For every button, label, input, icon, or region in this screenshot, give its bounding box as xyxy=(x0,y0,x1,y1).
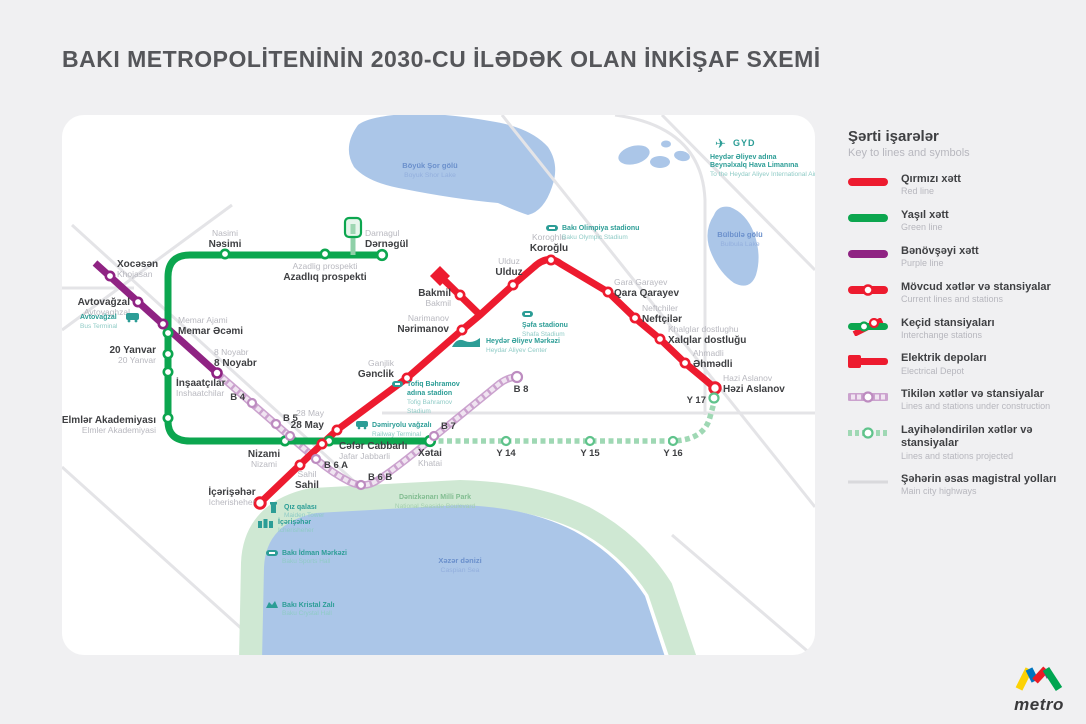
svg-text:Memar Əcəmi: Memar Əcəmi xyxy=(178,326,243,337)
tofig-bahramov-az1: Tofiq Bəhramov xyxy=(407,381,460,388)
sports-hall-az: Bakı İdman Mərkəzi xyxy=(282,549,347,557)
svg-text:8 Noyabr: 8 Noyabr xyxy=(214,347,249,357)
green-line-swatch-icon xyxy=(848,210,888,226)
svg-text:Neftchiler: Neftchiler xyxy=(642,303,678,313)
station-memar: Memar AjamiMemar Əcəmi xyxy=(178,315,243,337)
olympic-stadium-en: Baku Olympic Stadium xyxy=(562,234,628,241)
heydar-aliyev-center-az: Heydər Əliyev Mərkəzi xyxy=(486,338,560,345)
station-jafar: Cəfər CabbarlıJafar Jabbarli xyxy=(339,441,408,461)
crystal-hall-en: Baku Crystal Hall xyxy=(282,610,332,617)
red-line-swatch-icon xyxy=(848,174,888,190)
svg-text:Nizami: Nizami xyxy=(251,459,277,469)
depot-icon xyxy=(345,218,361,237)
page-title: BAKI METROPOLİTENİNİN 2030-CU İLƏDƏK OLA… xyxy=(62,46,821,73)
station-y17-label: Y 17 xyxy=(687,395,706,406)
station-elmler: Elmlər AkademiyasıElmler Akademiyasi xyxy=(62,415,156,435)
bus-terminal-en: Bus Terminal xyxy=(80,323,118,330)
tofig-bahramov-en2: Stadium xyxy=(407,408,431,415)
svg-text:Ahmadli: Ahmadli xyxy=(693,348,724,358)
svg-text:8 Noyabr: 8 Noyabr xyxy=(214,358,257,369)
station-ulduz: UlduzUlduz xyxy=(495,256,522,278)
highway-swatch-icon xyxy=(848,474,888,490)
station-narimanov: NarimanovNərimanov xyxy=(397,313,449,335)
svg-text:Azadlig prospekti: Azadlig prospekti xyxy=(293,261,358,271)
sports-hall-en: Baku Sports Hall xyxy=(282,558,331,565)
legend-item-depot: Elektrik depolarıElectrical Depot xyxy=(848,352,1084,377)
svg-text:20 Yanvar: 20 Yanvar xyxy=(118,355,156,365)
shafa-stadium-en: Shafa Stadium xyxy=(522,331,565,338)
icherisheher-landmark-az: İçərişəhər xyxy=(278,518,311,526)
metro-map-card: Böyük Şor gölü Boyuk Shor Lake Bülbülə g… xyxy=(62,115,815,655)
maiden-tower-en: Maiden Tower xyxy=(284,512,325,519)
airport-lake-1 xyxy=(616,142,652,168)
station-8noyabr: 8 Noyabr8 Noyabr xyxy=(214,347,257,369)
metro-m-icon xyxy=(1015,660,1063,692)
depot-swatch-icon xyxy=(848,353,888,369)
airport-code: GYD xyxy=(733,138,756,148)
airport-line1: Heydər Əliyev adına xyxy=(710,154,777,161)
caspian-label-az: Xəzər dənizi xyxy=(438,556,481,565)
station-khatai: XətaiKhatai xyxy=(418,448,442,468)
station-hazi: Hazi AslanovHəzi Aslanov xyxy=(723,373,785,395)
svg-text:Xalqlar dostluğu: Xalqlar dostluğu xyxy=(668,335,746,346)
current-stations-swatch-icon xyxy=(848,282,888,298)
svg-text:Ganjlik: Ganjlik xyxy=(368,358,395,368)
svg-text:Koroğlu: Koroğlu xyxy=(530,243,568,254)
park-label-az: Dənizkənarı Milli Park xyxy=(399,494,471,501)
svg-text:Ulduz: Ulduz xyxy=(498,256,520,266)
station-b6a-label: B 6 A xyxy=(324,460,348,471)
baku-metro-logo: metro xyxy=(1002,660,1076,715)
svg-text:Əhmədli: Əhmədli xyxy=(693,359,733,370)
svg-text:Sahil: Sahil xyxy=(295,480,319,491)
svg-text:Inshaatchilar: Inshaatchilar xyxy=(176,388,224,398)
station-neftchiler: NeftchilerNeftçilər xyxy=(642,303,682,325)
station-icherisheher: İçərişəhərIcherisheher xyxy=(208,485,255,507)
legend-subtitle: Key to lines and symbols xyxy=(848,147,1084,159)
station-nasimi: NasimiNəsimi xyxy=(209,228,242,250)
purple-line-swatch-icon xyxy=(848,246,888,262)
svg-text:Sahil: Sahil xyxy=(298,469,317,479)
tofig-bahramov-az2: adına stadion xyxy=(407,390,452,397)
svg-text:Hazi Aslanov: Hazi Aslanov xyxy=(723,373,773,383)
shafa-stadium-icon xyxy=(522,311,533,317)
svg-text:Həzi Aslanov: Həzi Aslanov xyxy=(723,384,785,395)
station-khalglar: Khalglar dostlughuXalqlar dostluğu xyxy=(668,324,746,346)
bulbula-label-az: Bülbülə gölü xyxy=(717,230,763,239)
crystal-hall-az: Bakı Kristal Zalı xyxy=(282,602,335,609)
plane-icon: ✈ xyxy=(715,136,726,151)
railway-terminal-en: Railway Terminal xyxy=(372,431,422,438)
airport-line3: To the Heydar Aliyev International Airpo… xyxy=(710,171,815,178)
legend-item-projected: Layihələndirilən xətlər və stansiyalarLi… xyxy=(848,424,1084,462)
sports-hall-icon xyxy=(266,550,278,556)
station-b5-label: B 5 xyxy=(283,413,299,424)
svg-text:Azadlıq prospekti: Azadlıq prospekti xyxy=(283,272,367,283)
interchange-swatch-icon xyxy=(848,318,888,336)
station-ahmadli: AhmadliƏhmədli xyxy=(693,348,733,370)
station-inshaatchilar: İnşaatçılarInshaatchilar xyxy=(176,376,226,398)
projected-swatch-icon xyxy=(848,425,888,441)
station-qara: Gara GarayevQara Qarayev xyxy=(614,277,679,299)
caspian-label-en: Caspian Sea xyxy=(441,567,480,574)
station-bakmil: BakmilBakmil xyxy=(418,288,451,308)
svg-text:Gənclik: Gənclik xyxy=(358,369,395,380)
station-khojasan: XocəsənKhojasan xyxy=(117,259,158,279)
maiden-tower-az: Qız qalası xyxy=(284,504,317,511)
svg-text:Ulduz: Ulduz xyxy=(495,267,522,278)
station-nizami: NizamiNizami xyxy=(248,449,280,469)
svg-text:Bakmil: Bakmil xyxy=(425,298,451,308)
tofig-bahramov-stadium-icon xyxy=(392,381,403,387)
svg-text:Gara Garayev: Gara Garayev xyxy=(614,277,668,287)
olympic-stadium-icon xyxy=(546,225,558,231)
station-y14-label: Y 14 xyxy=(496,448,516,459)
station-b7-label: B 7 xyxy=(441,421,456,432)
legend-item-highways: Şəhərin əsas magistral yollarıMain city … xyxy=(848,473,1084,498)
svg-text:Elmler Akademiyasi: Elmler Akademiyasi xyxy=(82,425,156,435)
svg-text:Nasimi: Nasimi xyxy=(212,228,238,238)
airport-lake-4 xyxy=(661,141,671,148)
airport-lake-2 xyxy=(650,156,670,168)
station-y16-label: Y 16 xyxy=(663,448,682,459)
bus-terminal-az: Avtovağzal xyxy=(80,314,117,321)
bus-terminal-icon xyxy=(126,313,139,322)
station-sahil: SahilSahil xyxy=(295,469,319,491)
svg-text:Memar Ajami: Memar Ajami xyxy=(178,315,228,325)
station-ganjlik: GanjlikGənclik xyxy=(358,358,395,380)
construction-swatch-icon xyxy=(848,389,888,405)
legend-item-current: Mövcud xətlər və stansiyalarCurrent line… xyxy=(848,281,1084,306)
station-b8-label: B 8 xyxy=(514,384,529,395)
legend-item-green-line: Yaşıl xəttGreen line xyxy=(848,209,1084,234)
legend-item-interchange: Keçid stansiyalarıInterchange stations xyxy=(848,317,1084,342)
olympic-stadium-az: Bakı Olimpiya stadionu xyxy=(562,225,639,232)
svg-text:Narimanov: Narimanov xyxy=(408,313,450,323)
svg-text:Nəsimi: Nəsimi xyxy=(209,239,242,250)
heydar-aliyev-center-en: Heydar Aliyev Center xyxy=(486,347,548,354)
legend-item-construction: Tikilən xətlər və stansiyalarLines and s… xyxy=(848,388,1084,413)
shafa-stadium-az: Şəfa stadionu xyxy=(522,322,568,329)
metro-wordmark: metro xyxy=(1002,695,1076,715)
railway-terminal-icon xyxy=(356,421,368,429)
airport-line2: Beynəlxalq Hava Limanına xyxy=(710,162,798,169)
legend-title: Şərti işarələr xyxy=(848,128,1084,145)
station-darnagul: DarnagulDərnəgül xyxy=(365,228,409,250)
svg-text:Nərimanov: Nərimanov xyxy=(397,324,449,335)
railway-terminal-az: Dəmiryolu vağzalı xyxy=(372,422,432,429)
svg-text:Khatai: Khatai xyxy=(418,458,442,468)
bulbula-label-en: Bulbula Lake xyxy=(720,241,760,248)
svg-text:Dərnəgül: Dərnəgül xyxy=(365,239,409,250)
legend-item-purple-line: Bənövşəyi xəttPurple line xyxy=(848,245,1084,270)
svg-text:Khalglar dostlughu: Khalglar dostlughu xyxy=(668,324,739,334)
station-20yanvar: 20 Yanvar20 Yanvar xyxy=(109,345,156,365)
boyuk-shor-label-en: Boyuk Shor Lake xyxy=(404,172,456,179)
boyuk-shor-label-az: Böyük Şor gölü xyxy=(402,161,458,170)
station-y15-label: Y 15 xyxy=(580,448,600,459)
svg-text:28 May: 28 May xyxy=(296,408,325,418)
svg-text:Khojasan: Khojasan xyxy=(117,269,153,279)
svg-text:Darnagul: Darnagul xyxy=(365,228,400,238)
metro-map: Böyük Şor gölü Boyuk Shor Lake Bülbülə g… xyxy=(62,115,815,655)
maiden-tower-icon xyxy=(270,502,277,513)
station-azadliq: Azadlig prospektiAzadlıq prospekti xyxy=(283,261,367,283)
park-label-en: National Seaside Boulevard xyxy=(395,503,476,510)
station-b6b-label: B 6 B xyxy=(368,472,392,483)
station-b4-label: B 4 xyxy=(230,392,246,403)
svg-text:Icherisheher: Icherisheher xyxy=(209,497,256,507)
tofig-bahramov-en1: Tofig Bahramov xyxy=(407,399,453,406)
legend: Şərti işarələr Key to lines and symbols … xyxy=(848,128,1084,509)
svg-text:Qara Qarayev: Qara Qarayev xyxy=(614,288,679,299)
icherisheher-landmark-en: Icherisheher xyxy=(278,527,315,534)
legend-item-red-line: Qırmızı xəttRed line xyxy=(848,173,1084,198)
airport-label: ✈ GYD Heydər Əliyev adına Beynəlxalq Hav… xyxy=(710,136,815,178)
